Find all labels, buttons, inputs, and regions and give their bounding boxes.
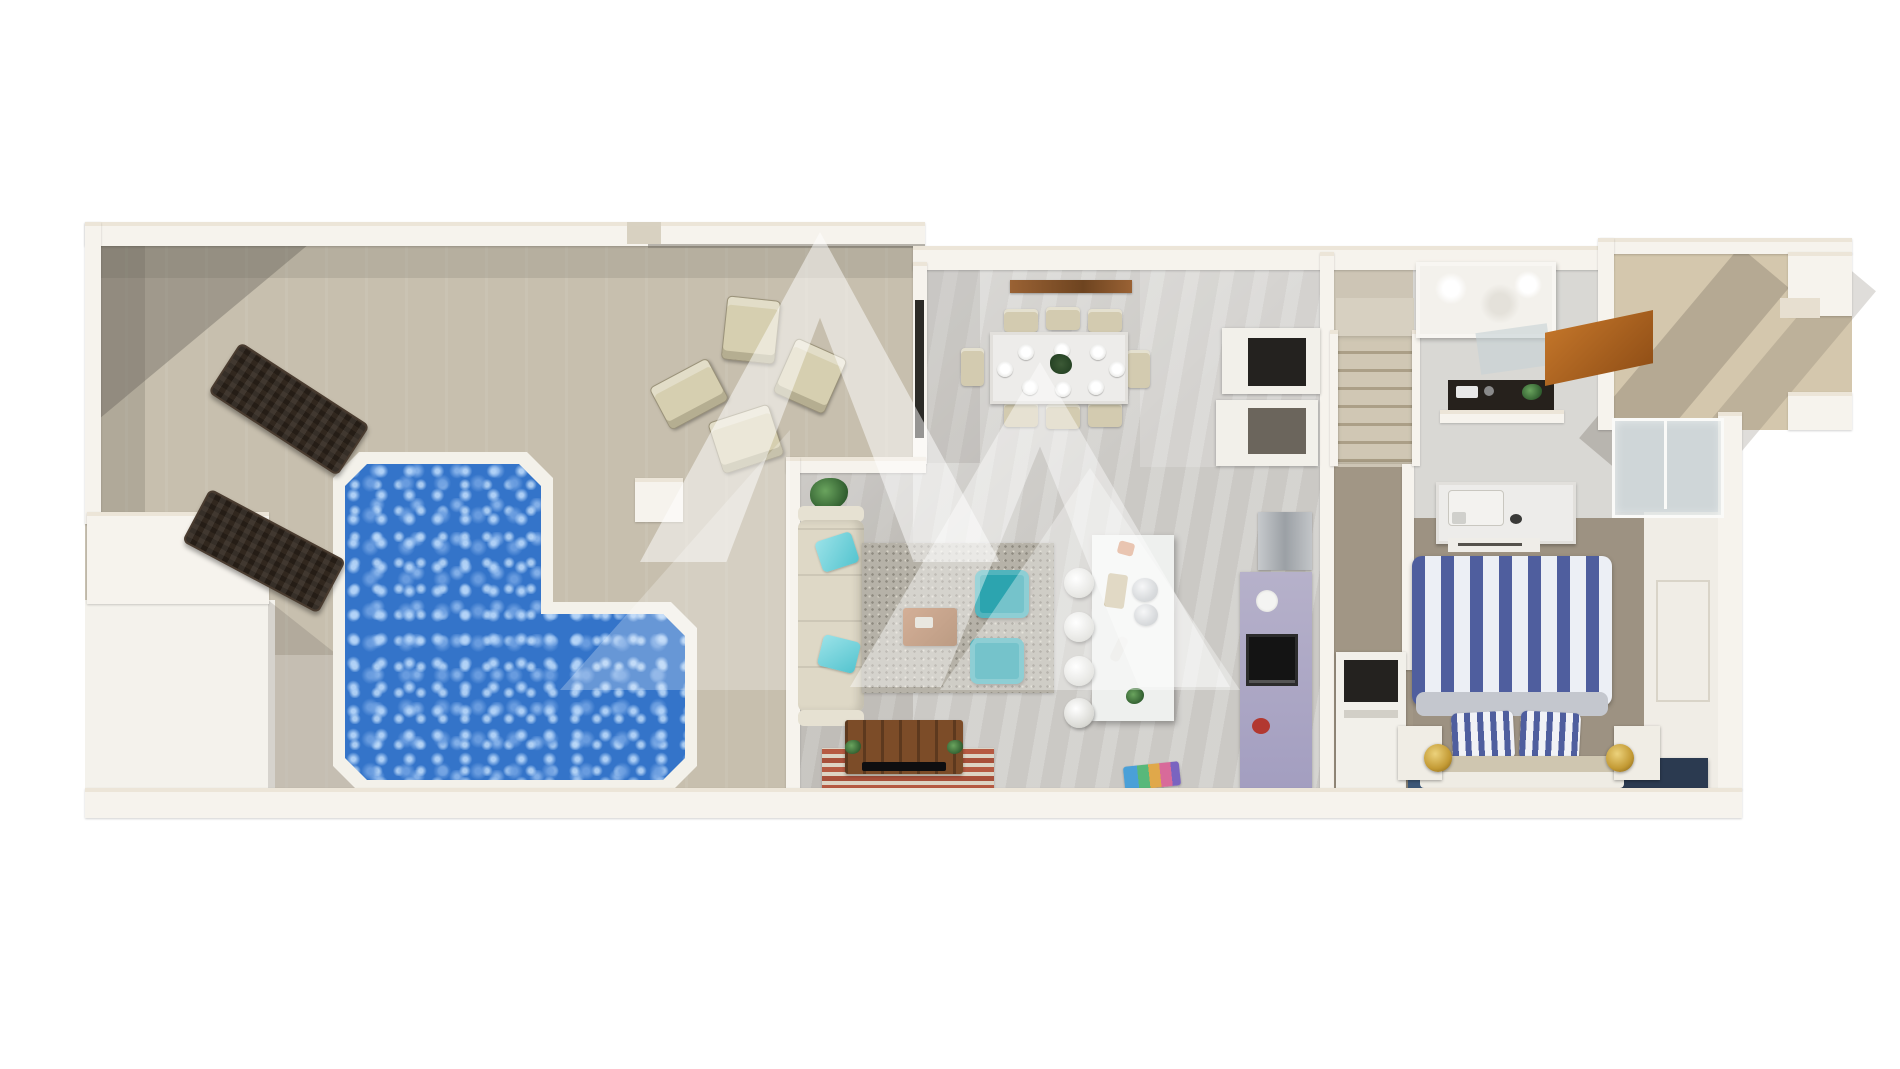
staircase [1336, 336, 1414, 464]
desk-item-dark [1510, 514, 1522, 524]
plate-4 [997, 361, 1013, 377]
floorplan-render [0, 0, 1900, 1069]
lower-level-patio [85, 600, 275, 790]
dining-chair-2 [1046, 307, 1080, 330]
upper-terrace-wall-se [1788, 392, 1852, 430]
wall-opening-top [627, 222, 661, 244]
dining-chair-8 [1127, 350, 1150, 388]
media-ledge [1440, 410, 1564, 423]
kitchen-sink [1256, 590, 1278, 612]
plate-1 [1018, 344, 1034, 360]
media-shelf-item-1 [1456, 386, 1478, 398]
upper-terrace-step [1780, 298, 1820, 318]
wall-bottom [85, 788, 1742, 818]
east-wardrobe-door [1656, 580, 1710, 702]
dining-centerpiece [1050, 354, 1072, 374]
bed-pillow-1 [1451, 710, 1515, 761]
stair-stringer-right [1412, 330, 1420, 466]
shower-glass [1612, 418, 1724, 518]
bed-frame [1420, 772, 1624, 788]
dining-chair-7 [961, 348, 984, 386]
dining-chair-6 [1088, 402, 1122, 427]
dining-console [1010, 280, 1132, 293]
tv-screen [862, 762, 946, 771]
bar-stool-4 [1064, 698, 1094, 728]
kitchen-upper-cabinet-slot [1248, 408, 1306, 454]
dining-chair-3 [1088, 309, 1122, 332]
lamp-1 [1424, 744, 1452, 772]
kitchen-tall-cabinet-slot [1248, 338, 1306, 386]
oven [1246, 634, 1298, 686]
desk-item-small [1452, 512, 1466, 524]
media-shelf-item-2 [1484, 386, 1494, 396]
desk-shelf-papers [1458, 543, 1522, 546]
plate-8 [1088, 379, 1104, 395]
hall-cabinet-slot [1344, 660, 1398, 702]
shower-divider [1664, 421, 1667, 509]
terrace-shadow-left [99, 244, 145, 544]
stair-stringer-left [1330, 330, 1338, 466]
wall-left [85, 222, 101, 524]
plate-5 [1109, 361, 1125, 377]
kitchen-red-pot [1252, 718, 1270, 734]
plate-3 [1090, 344, 1106, 360]
stairs-landing [1336, 298, 1414, 338]
bed-pillow-2 [1519, 710, 1581, 761]
wall-top-edge-line [648, 244, 925, 248]
bed-duvet [1412, 556, 1612, 706]
hall-cabinet-shelf [1344, 710, 1398, 718]
dining-chair-1 [1004, 309, 1038, 332]
wall-terrace-top [85, 222, 925, 246]
fridge [1258, 512, 1312, 570]
lamp-2 [1606, 744, 1634, 772]
